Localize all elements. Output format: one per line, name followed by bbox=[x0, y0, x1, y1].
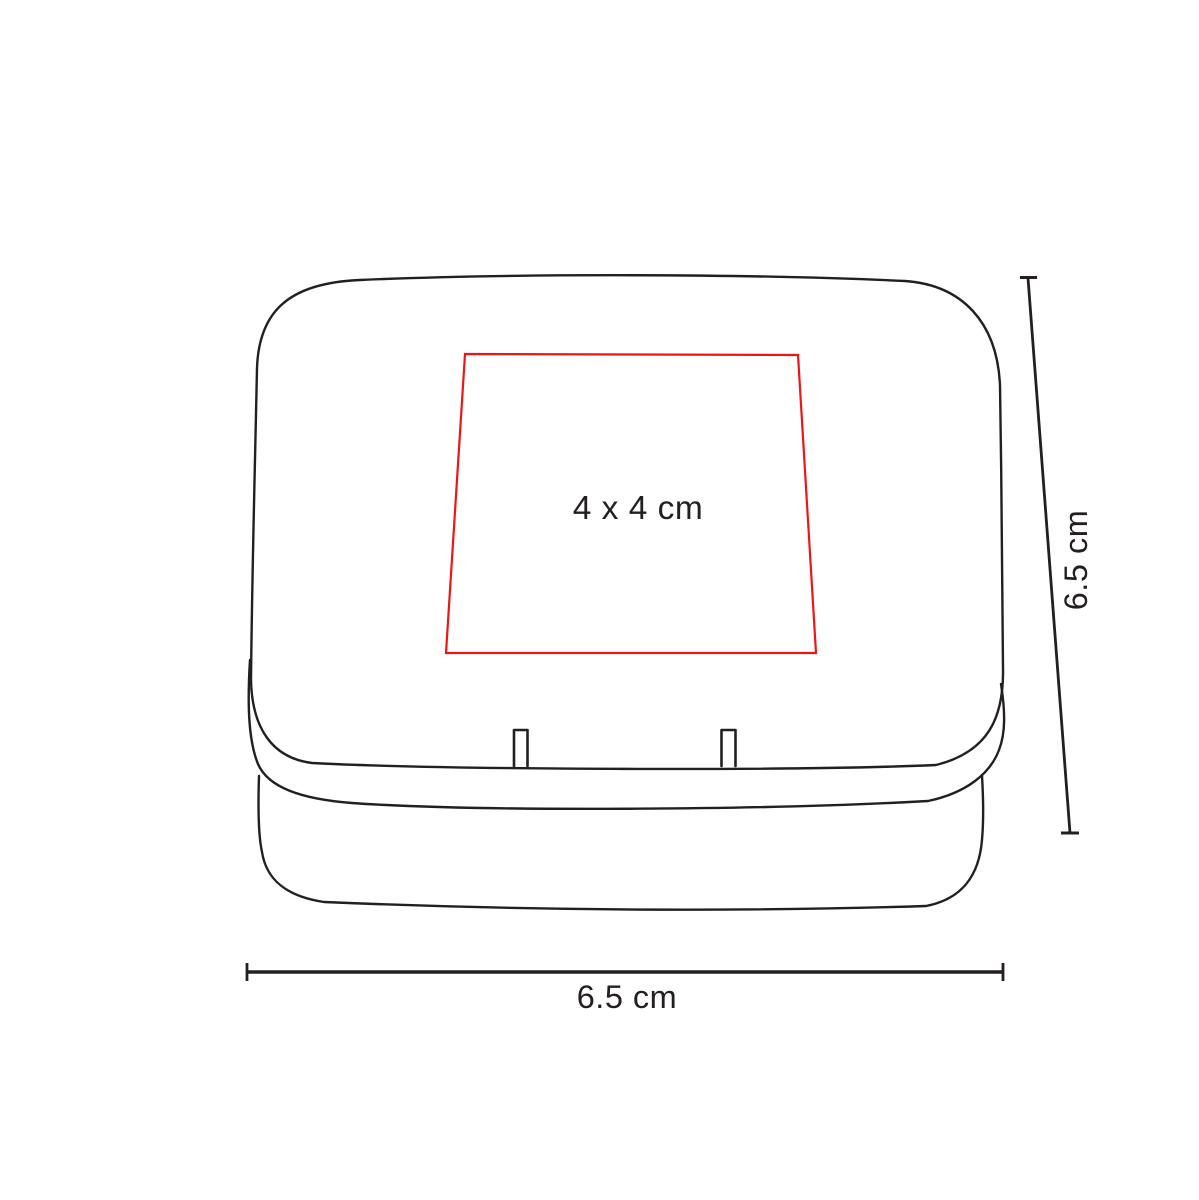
product-dimension-diagram: 4 x 4 cm 6.5 cm 6.5 cm bbox=[0, 0, 1199, 1200]
imprint-area-label: 4 x 4 cm bbox=[573, 490, 704, 527]
tin-box-outline-group bbox=[249, 275, 1004, 909]
tin-base-outline bbox=[258, 775, 983, 910]
tin-box-dimension-drawing: 4 x 4 cm 6.5 cm 6.5 cm bbox=[0, 0, 1199, 1200]
height-dimension-label: 6.5 cm bbox=[1058, 510, 1094, 611]
width-dimension-label: 6.5 cm bbox=[577, 979, 678, 1015]
